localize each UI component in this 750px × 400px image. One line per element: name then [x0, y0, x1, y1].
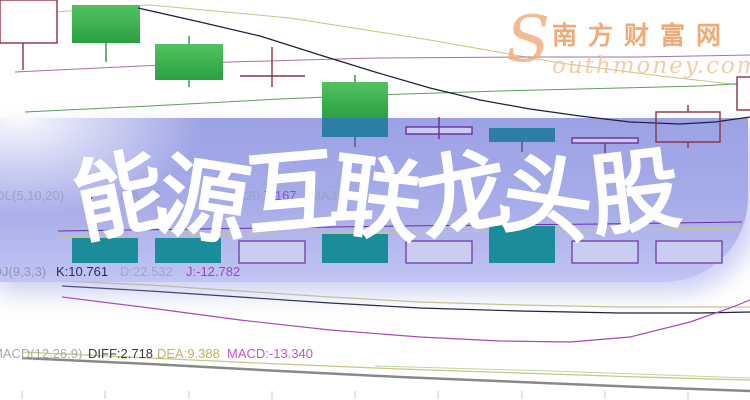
title-char: 互: [242, 140, 336, 246]
stock-chart-promo-image: VOL(5,10,20)9MA2MA20:7.167MA3KDJ(9,3,3)K…: [0, 0, 750, 400]
title-char: 源: [152, 146, 252, 257]
candle: [322, 118, 388, 137]
page-title: 能源互联龙头股: [0, 144, 750, 243]
volume-bar: [656, 241, 722, 263]
title-char: 股: [584, 139, 681, 248]
watermark-brand-en: outhmoney.com: [552, 53, 750, 79]
watermark-brand-cn: 南方财富网: [552, 16, 750, 52]
title-char: 联: [326, 145, 423, 254]
candle: [489, 128, 555, 142]
watermark-s-swoosh: S: [506, 8, 550, 72]
title-char: 头: [496, 144, 596, 255]
watermark: S 南方财富网 outhmoney.com: [552, 16, 750, 79]
